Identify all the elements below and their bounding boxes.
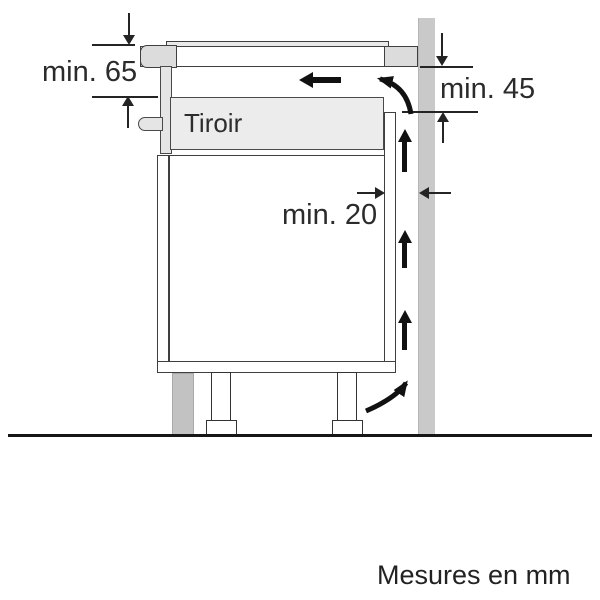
drawer-box: Tiroir [170, 97, 384, 150]
dim-label-wall-gap: min. 20 [282, 199, 377, 232]
airflow-up-arrow-stem [402, 321, 407, 350]
cabinet-bottom-panel [157, 361, 396, 373]
dim-label-right-clearance: min. 45 [440, 73, 535, 106]
leg-foot-left [206, 420, 237, 435]
cabinet-side-panel-right [384, 112, 396, 373]
fixing-clamp [138, 117, 163, 131]
dim-line-45-top [420, 66, 473, 68]
cooktop-left-edge [140, 45, 177, 68]
dim-arrowhead-left-icon [419, 187, 429, 199]
cooktop-body [140, 46, 418, 67]
airflow-left-arrow [311, 77, 341, 83]
cooktop-right-edge [384, 46, 418, 67]
wall-section [418, 18, 435, 437]
dim-arrow-45-up [442, 120, 444, 143]
dim-arrow-65-up [127, 104, 129, 128]
cabinet-leg-left [211, 372, 231, 422]
airflow-up-arrow-stem [402, 140, 407, 172]
floor-line [8, 434, 592, 437]
cabinet-interior [169, 155, 385, 363]
dim-arrow-20-right-stem [427, 192, 451, 194]
cabinet-leg-right [337, 372, 357, 422]
drawer-label: Tiroir [184, 108, 242, 139]
airflow-up-arrow-stem [402, 241, 407, 268]
airflow-curve-bottom-arrow [366, 383, 406, 411]
airflow-curve-top-arrow [380, 79, 411, 114]
dim-arrow-20-left-stem [357, 192, 377, 194]
dim-arrowhead-right-icon [375, 187, 385, 199]
dim-arrowhead-up-icon [437, 112, 449, 122]
airflow-left-arrowhead-icon [299, 72, 313, 88]
cabinet-side-panel-left [157, 155, 169, 373]
dim-arrow-65-down [128, 13, 130, 37]
units-note: Mesures en mm [377, 560, 571, 591]
dim-label-top-clearance: min. 65 [42, 56, 137, 89]
dim-arrowhead-down-icon [123, 35, 135, 45]
dim-arrowhead-up-icon [122, 96, 134, 106]
plinth-panel [172, 373, 194, 435]
installation-diagram: Tiroir min. 65 min. 45 min. 20 [0, 0, 600, 600]
dim-arrowhead-down-icon [436, 56, 448, 66]
leg-foot-right [332, 420, 363, 435]
dim-arrow-45-down [441, 33, 443, 57]
